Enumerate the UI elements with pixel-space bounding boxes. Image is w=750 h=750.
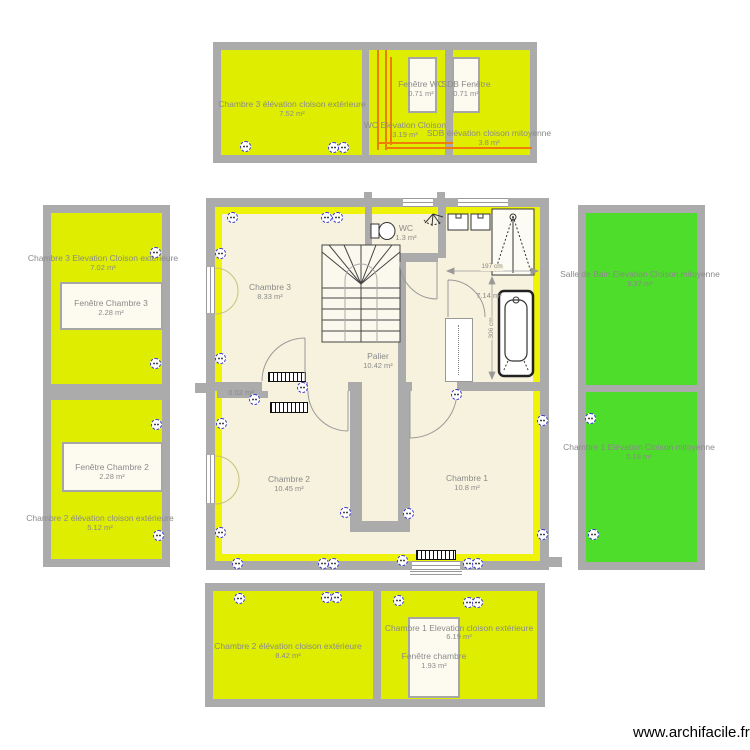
window-label: Fenêtre WC bbox=[398, 80, 444, 89]
exterior-wall-right[interactable] bbox=[540, 198, 549, 570]
elevation-area: 5.18 m² bbox=[626, 453, 651, 461]
power-outlet-icon[interactable] bbox=[472, 597, 483, 608]
wall-wc-sdb[interactable] bbox=[438, 207, 446, 258]
window-sdb-top[interactable] bbox=[458, 198, 508, 207]
power-outlet-icon[interactable] bbox=[340, 507, 351, 518]
window-area: 2.28 m² bbox=[98, 309, 123, 317]
floorplan-canvas[interactable]: Chambre 3 élévation cloison extérieure 7… bbox=[0, 0, 750, 750]
room-area-palier: 10.42 m² bbox=[363, 362, 393, 370]
power-outlet-icon[interactable] bbox=[240, 141, 251, 152]
archifacile-watermark: www.archifacile.fr bbox=[633, 724, 750, 741]
room-label-chambre2[interactable]: Chambre 2 bbox=[268, 475, 310, 484]
orange-guide-line bbox=[385, 50, 387, 150]
power-outlet-icon[interactable] bbox=[215, 248, 226, 259]
wall-stub bbox=[195, 383, 206, 393]
elevation-sdb-green[interactable] bbox=[586, 213, 697, 385]
window-area: 0.71 m² bbox=[453, 90, 478, 98]
radiator-icon[interactable] bbox=[416, 550, 456, 560]
wall-middle[interactable] bbox=[398, 382, 412, 391]
wall-corridor-cap[interactable] bbox=[350, 521, 410, 532]
elevation-area: 5.12 m² bbox=[87, 524, 112, 532]
room-label-chambre1[interactable]: Chambre 1 bbox=[446, 474, 488, 483]
elevation-label: SDB élévation cloison mitoyenne bbox=[427, 129, 551, 138]
power-outlet-icon[interactable] bbox=[150, 247, 161, 258]
wall-stub bbox=[364, 192, 372, 199]
electrical-panel[interactable]: TGBT bbox=[322, 326, 340, 338]
window-area: 2.28 m² bbox=[99, 473, 124, 481]
wall-highlight bbox=[215, 554, 540, 561]
room-area-chambre3: 8.33 m² bbox=[257, 293, 282, 301]
room-label-chambre3[interactable]: Chambre 3 bbox=[249, 283, 291, 292]
power-outlet-icon[interactable] bbox=[232, 558, 243, 569]
power-outlet-icon[interactable] bbox=[216, 418, 227, 429]
elevation-chambre1-green[interactable] bbox=[586, 392, 697, 562]
bathroom-cabinet[interactable] bbox=[445, 318, 473, 382]
room-area-chambre2: 10.45 m² bbox=[274, 485, 304, 493]
power-outlet-icon[interactable] bbox=[328, 558, 339, 569]
elevation-label: Salle de Bain Elevation Cloison mitoyenn… bbox=[560, 270, 720, 279]
power-outlet-icon[interactable] bbox=[397, 555, 408, 566]
power-outlet-icon[interactable] bbox=[151, 419, 162, 430]
radiator-icon[interactable] bbox=[270, 402, 308, 413]
elevation-area: 7.02 m² bbox=[90, 264, 115, 272]
window-area: 0.71 m² bbox=[408, 90, 433, 98]
radiator-icon[interactable] bbox=[268, 372, 306, 382]
elevation-area: 6.19 m² bbox=[446, 633, 471, 641]
power-outlet-icon[interactable] bbox=[321, 212, 332, 223]
room-label-palier[interactable]: Palier bbox=[367, 352, 389, 361]
window-label: Fenêtre chambre bbox=[402, 652, 467, 661]
orange-guide-line bbox=[377, 142, 453, 144]
wall-chambre3-wc[interactable] bbox=[365, 207, 372, 245]
room-area-wc: 1.3 m² bbox=[395, 234, 416, 242]
elevation-label: Chambre 2 élévation cloison extérieure bbox=[26, 514, 173, 523]
elevation-area: 8.42 m² bbox=[275, 652, 300, 660]
window-area: 1.93 m² bbox=[421, 662, 446, 670]
power-outlet-icon[interactable] bbox=[234, 593, 245, 604]
room-area-chambre1: 10.8 m² bbox=[454, 484, 479, 492]
elevation-area: 9.37 m² bbox=[627, 280, 652, 288]
power-outlet-icon[interactable] bbox=[153, 530, 164, 541]
power-outlet-icon[interactable] bbox=[451, 389, 462, 400]
power-outlet-icon[interactable] bbox=[332, 212, 343, 223]
power-outlet-icon[interactable] bbox=[215, 353, 226, 364]
elevation-area: 7.52 m² bbox=[279, 110, 304, 118]
elevation-label: Chambre 1 Elévation Cloison mitoyenne bbox=[563, 443, 715, 452]
exterior-wall-bottom[interactable] bbox=[206, 561, 549, 570]
wall-stub bbox=[437, 192, 445, 199]
wall-middle[interactable] bbox=[457, 382, 540, 391]
elevation-label: Chambre 3 élévation cloison extérieure bbox=[218, 100, 365, 109]
power-outlet-icon[interactable] bbox=[588, 529, 599, 540]
wall-wc-south[interactable] bbox=[398, 253, 438, 262]
orange-guide-line bbox=[385, 147, 532, 149]
window-label: Fenêtre Chambre 3 bbox=[74, 299, 148, 308]
elevation-label: Chambre 2 élévation cloison extérieure bbox=[214, 642, 361, 651]
power-outlet-icon[interactable] bbox=[393, 595, 404, 606]
room-area-sdb: 7.14 m² bbox=[476, 292, 501, 300]
power-outlet-icon[interactable] bbox=[472, 558, 483, 569]
wall-highlight bbox=[215, 207, 540, 214]
exterior-wall-left[interactable] bbox=[206, 198, 215, 570]
window-sill bbox=[410, 571, 462, 577]
wall-palier-sdb[interactable] bbox=[398, 262, 406, 382]
window-chambre2-left[interactable] bbox=[206, 455, 215, 503]
elevation-area: 3.8 m² bbox=[478, 139, 499, 147]
power-outlet-icon[interactable] bbox=[338, 142, 349, 153]
wall-middle[interactable] bbox=[348, 382, 362, 391]
power-outlet-icon[interactable] bbox=[585, 413, 596, 424]
power-outlet-icon[interactable] bbox=[150, 358, 161, 369]
power-outlet-icon[interactable] bbox=[537, 529, 548, 540]
wall-stub bbox=[549, 557, 562, 567]
power-outlet-icon[interactable] bbox=[403, 508, 414, 519]
window-label: Fenêtre Chambre 2 bbox=[75, 463, 149, 472]
power-outlet-icon[interactable] bbox=[331, 592, 342, 603]
window-chambre3-left[interactable] bbox=[206, 267, 215, 313]
window-label: SDB Fenêtre bbox=[441, 80, 490, 89]
power-outlet-icon[interactable] bbox=[249, 394, 260, 405]
window-chambre1-bottom[interactable] bbox=[412, 561, 460, 570]
room-label-wc[interactable]: WC bbox=[399, 224, 413, 233]
orange-guide-line bbox=[377, 50, 379, 150]
power-outlet-icon[interactable] bbox=[297, 382, 308, 393]
wall-corridor-left[interactable] bbox=[350, 391, 362, 521]
dimension-width-label: 197 cm bbox=[480, 264, 503, 271]
dimension-height-label: 306 cm bbox=[489, 316, 496, 339]
power-outlet-icon[interactable] bbox=[537, 415, 548, 426]
window-wc-top[interactable] bbox=[403, 198, 433, 207]
elevation-area: 3.19 m² bbox=[392, 131, 417, 139]
wall-corridor-right[interactable] bbox=[398, 391, 410, 521]
power-outlet-icon[interactable] bbox=[215, 527, 226, 538]
power-outlet-icon[interactable] bbox=[227, 212, 238, 223]
